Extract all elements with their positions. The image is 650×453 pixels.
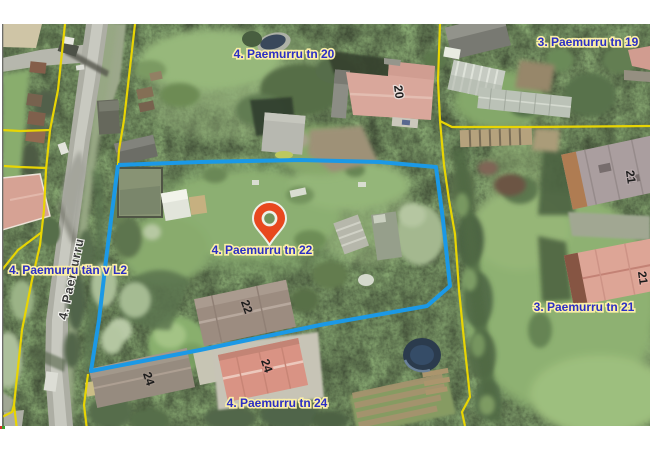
svg-text:4. Paemurru tän v L2: 4. Paemurru tän v L2 — [9, 263, 127, 277]
svg-text:4. Paemurru tn 24: 4. Paemurru tn 24 — [227, 396, 328, 410]
svg-text:4. Paemurru tn 22: 4. Paemurru tn 22 — [212, 243, 313, 257]
svg-text:21: 21 — [623, 169, 639, 184]
svg-text:3. Paemurru tn 21: 3. Paemurru tn 21 — [534, 300, 635, 314]
svg-text:20: 20 — [391, 84, 407, 99]
svg-text:21: 21 — [635, 270, 650, 285]
svg-text:3. Paemurru tn 19: 3. Paemurru tn 19 — [538, 35, 639, 49]
svg-text:4. Paemurru tn 20: 4. Paemurru tn 20 — [234, 47, 335, 61]
